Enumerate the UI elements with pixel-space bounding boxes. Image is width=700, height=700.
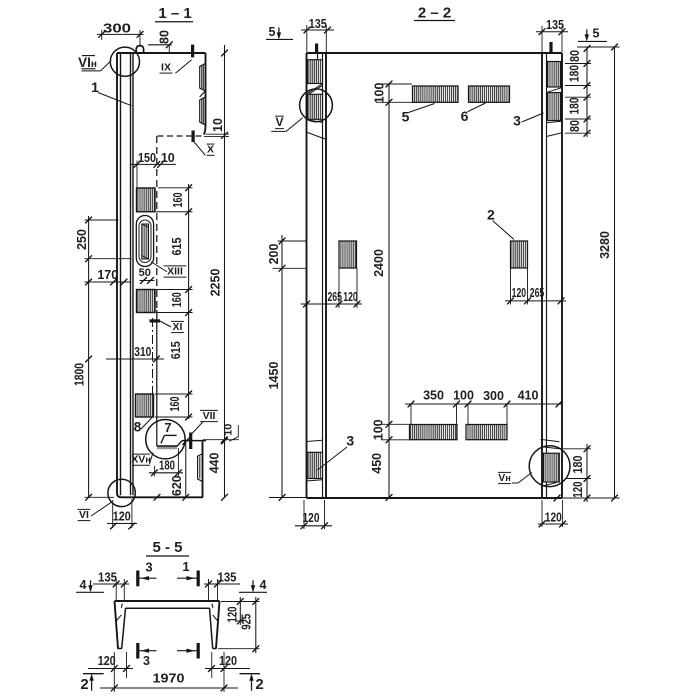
svg-text:100: 100 xyxy=(372,419,386,440)
svg-text:1970: 1970 xyxy=(153,671,185,685)
svg-text:200: 200 xyxy=(267,244,281,265)
svg-text:7: 7 xyxy=(164,420,171,435)
svg-text:265: 265 xyxy=(327,290,342,304)
svg-text:80: 80 xyxy=(157,30,171,44)
svg-text:120: 120 xyxy=(226,606,240,622)
svg-text:180: 180 xyxy=(567,97,581,114)
svg-text:2: 2 xyxy=(255,676,263,693)
svg-text:VI: VI xyxy=(79,509,89,521)
svg-text:300: 300 xyxy=(483,389,504,403)
svg-text:XVн: XVн xyxy=(131,454,150,466)
svg-text:6: 6 xyxy=(461,108,469,124)
svg-text:1: 1 xyxy=(91,79,99,95)
svg-text:135: 135 xyxy=(218,571,237,585)
svg-text:3: 3 xyxy=(346,433,354,449)
svg-text:250: 250 xyxy=(75,229,89,250)
svg-text:120: 120 xyxy=(545,511,562,525)
svg-text:5: 5 xyxy=(593,27,600,41)
svg-text:2: 2 xyxy=(80,676,88,693)
svg-text:120: 120 xyxy=(303,511,320,525)
svg-text:120: 120 xyxy=(343,290,358,304)
svg-text:350: 350 xyxy=(423,389,444,403)
svg-text:10: 10 xyxy=(223,424,235,436)
svg-text:2 – 2: 2 – 2 xyxy=(418,5,451,22)
svg-text:IX: IX xyxy=(161,62,171,74)
svg-text:2: 2 xyxy=(487,206,495,222)
svg-text:5 - 5: 5 - 5 xyxy=(152,539,182,556)
svg-text:2400: 2400 xyxy=(372,249,386,277)
svg-text:80: 80 xyxy=(568,50,582,62)
svg-text:3: 3 xyxy=(143,654,150,668)
svg-text:180: 180 xyxy=(159,459,175,473)
svg-text:120: 120 xyxy=(113,510,131,524)
svg-text:3: 3 xyxy=(145,560,152,575)
svg-text:2250: 2250 xyxy=(208,269,222,297)
svg-text:3280: 3280 xyxy=(598,231,612,259)
svg-text:620: 620 xyxy=(170,475,184,496)
svg-text:5: 5 xyxy=(402,109,410,125)
svg-text:180: 180 xyxy=(571,455,585,473)
svg-text:3: 3 xyxy=(513,113,521,129)
svg-text:120: 120 xyxy=(571,482,585,498)
svg-text:440: 440 xyxy=(207,453,221,474)
svg-text:135: 135 xyxy=(309,17,327,31)
svg-text:Vн: Vн xyxy=(498,472,510,484)
svg-text:5: 5 xyxy=(269,25,276,39)
svg-text:300: 300 xyxy=(103,22,131,36)
svg-text:80: 80 xyxy=(568,120,582,132)
svg-text:615: 615 xyxy=(170,237,184,255)
svg-text:4: 4 xyxy=(260,578,267,592)
svg-text:XI: XI xyxy=(173,321,183,333)
svg-text:100: 100 xyxy=(373,83,387,104)
svg-text:120: 120 xyxy=(98,654,116,668)
svg-text:310: 310 xyxy=(134,345,151,359)
svg-text:135: 135 xyxy=(546,18,564,32)
svg-text:450: 450 xyxy=(370,453,384,474)
svg-text:10: 10 xyxy=(211,118,225,132)
svg-text:135: 135 xyxy=(98,571,117,585)
svg-text:1 – 1: 1 – 1 xyxy=(158,5,191,22)
svg-text:4: 4 xyxy=(80,578,87,592)
svg-text:150: 150 xyxy=(138,151,156,165)
svg-text:925: 925 xyxy=(239,614,253,630)
svg-text:8: 8 xyxy=(134,420,142,435)
svg-text:XIII: XIII xyxy=(167,266,183,278)
svg-text:180: 180 xyxy=(567,65,581,82)
svg-text:1: 1 xyxy=(182,559,189,574)
svg-text:265: 265 xyxy=(530,286,545,300)
svg-text:50: 50 xyxy=(139,267,151,279)
svg-text:X: X xyxy=(207,144,214,156)
svg-text:160: 160 xyxy=(168,396,182,411)
svg-text:160: 160 xyxy=(170,292,184,307)
svg-text:1450: 1450 xyxy=(267,362,281,390)
svg-text:410: 410 xyxy=(518,389,539,403)
svg-text:V: V xyxy=(275,115,283,129)
svg-text:160: 160 xyxy=(171,192,185,207)
svg-text:1800: 1800 xyxy=(72,363,86,386)
svg-text:615: 615 xyxy=(169,341,183,359)
svg-text:VII: VII xyxy=(203,410,216,422)
svg-text:120: 120 xyxy=(219,654,237,668)
